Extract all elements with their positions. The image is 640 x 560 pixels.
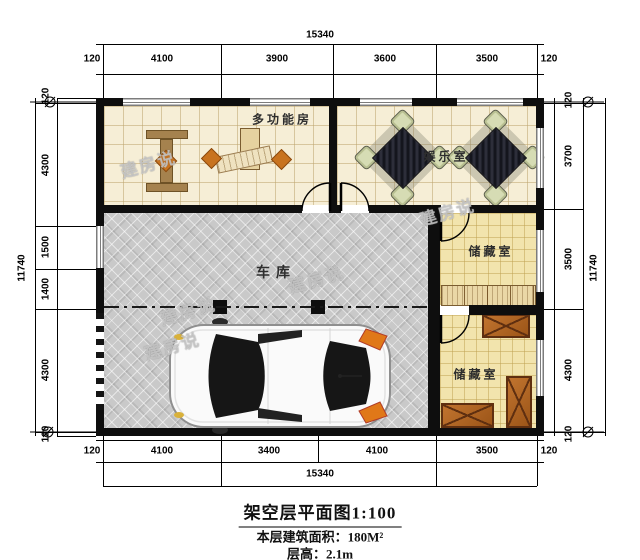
room-label-storage-lower: 储藏室 bbox=[453, 366, 498, 383]
page-title: 架空层平面图1:100 bbox=[239, 499, 402, 528]
room-label-storage-upper: 储藏室 bbox=[468, 243, 513, 260]
car-graphic bbox=[170, 318, 390, 434]
car-headlight bbox=[174, 334, 184, 340]
room-label-garage: 车库 bbox=[256, 262, 296, 282]
floor-plan-page: 多功能房 娱乐室 车库 储藏室 储藏室 建房说 建房说 建房说 建房说 建房说 … bbox=[0, 0, 640, 560]
car-headlight bbox=[174, 412, 184, 418]
door-arc bbox=[441, 213, 469, 241]
plan-linework bbox=[0, 0, 640, 560]
room-label-entertainment: 娱乐室 bbox=[423, 148, 468, 165]
floor-height-label: 层高：2.1m bbox=[287, 544, 353, 560]
room-label-multi-function: 多功能房 bbox=[252, 111, 312, 128]
door-swings bbox=[302, 183, 469, 343]
car-windshield bbox=[209, 334, 265, 418]
door-arc bbox=[341, 183, 369, 211]
door-arc bbox=[441, 315, 469, 343]
door-arc bbox=[302, 183, 330, 211]
